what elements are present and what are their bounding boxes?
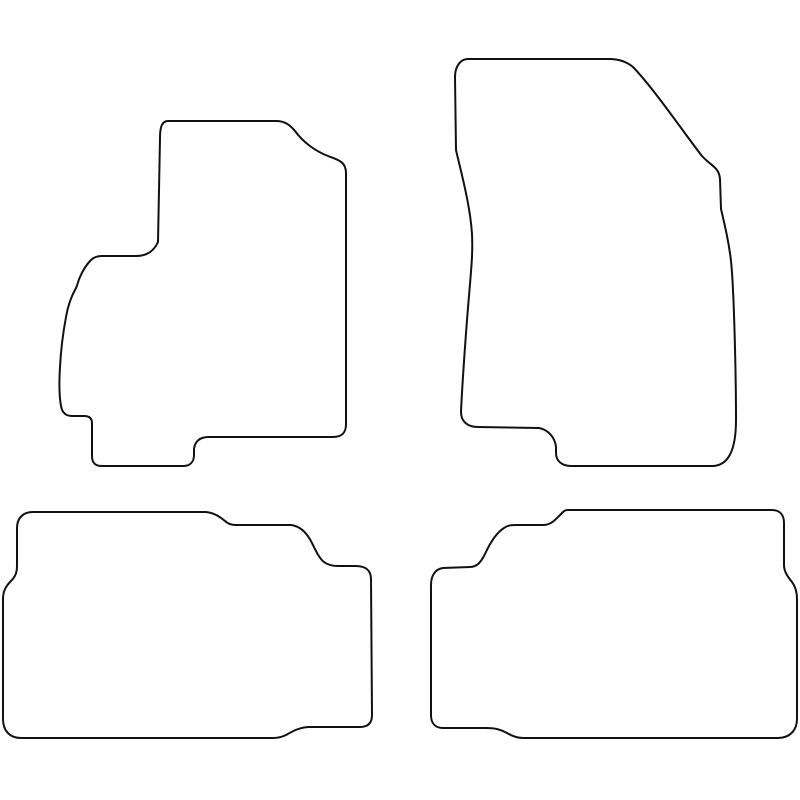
rear-right-mat-outline	[431, 510, 797, 738]
front-left-mat-outline	[59, 121, 346, 466]
floor-mat-set-drawing	[0, 0, 800, 800]
rear-left-mat-outline	[3, 512, 372, 738]
product-image-canvas	[0, 0, 800, 800]
front-right-mat-outline	[455, 59, 736, 466]
